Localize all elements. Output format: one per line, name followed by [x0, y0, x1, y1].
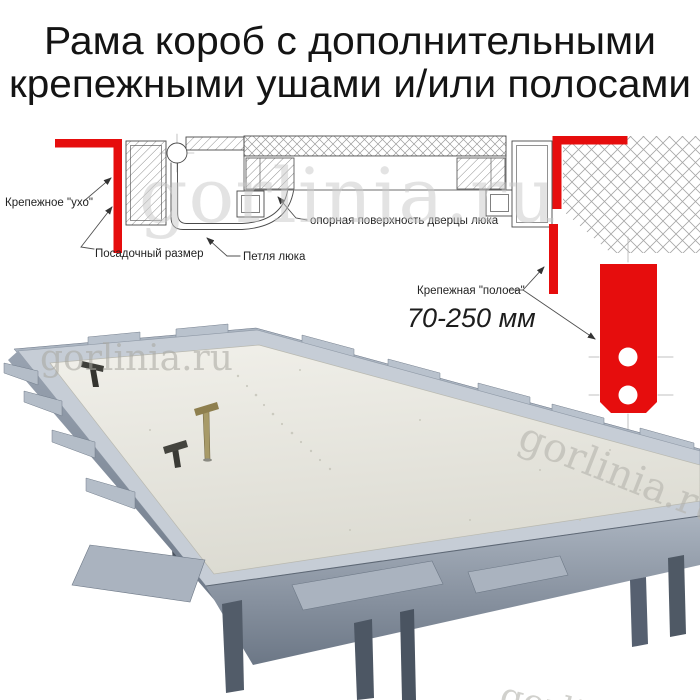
leg	[354, 619, 374, 700]
leader-seat	[81, 207, 112, 249]
wall-hatching	[563, 136, 700, 253]
label-mounting-ear: Крепежное "ухо"	[5, 197, 93, 209]
support-flange-section	[186, 137, 244, 150]
watermark-diagram: gorlinia.ru	[139, 151, 557, 240]
label-hatch-hinge: Петля люка	[243, 251, 306, 263]
leg	[400, 609, 416, 700]
page-title: Рама короб с дополнительными крепежными …	[9, 20, 691, 106]
leg	[630, 577, 648, 647]
mounting-ear-left-vertical	[114, 139, 123, 253]
scene: Рама короб с дополнительными крепежными …	[0, 0, 700, 700]
leg	[222, 600, 244, 693]
label-seating-size: Посадочный размер	[95, 248, 204, 260]
leg	[668, 555, 686, 637]
watermark-photo-bottom: gorlinia.ru	[496, 675, 693, 700]
label-mounting-strip: Крепежная "полоса"	[417, 285, 525, 297]
strip-hole-bottom	[619, 386, 638, 405]
product-image: Рама короб с дополнительными крепежными …	[0, 0, 700, 700]
leader-hinge	[207, 238, 240, 256]
strip-hole-top	[619, 348, 638, 367]
watermark-photo-left: gorlinia.ru	[40, 338, 233, 379]
product-photo	[4, 324, 700, 700]
title-line-2: крепежными ушами и/или полосами	[9, 63, 691, 106]
label-strip-range: 70-250 мм	[407, 303, 536, 333]
mounting-ear-right-horizontal	[553, 136, 628, 145]
leader-strip-up	[523, 267, 544, 290]
mounting-ear-left-horizontal	[55, 139, 122, 148]
title-line-1: Рама короб с дополнительными	[44, 20, 656, 63]
